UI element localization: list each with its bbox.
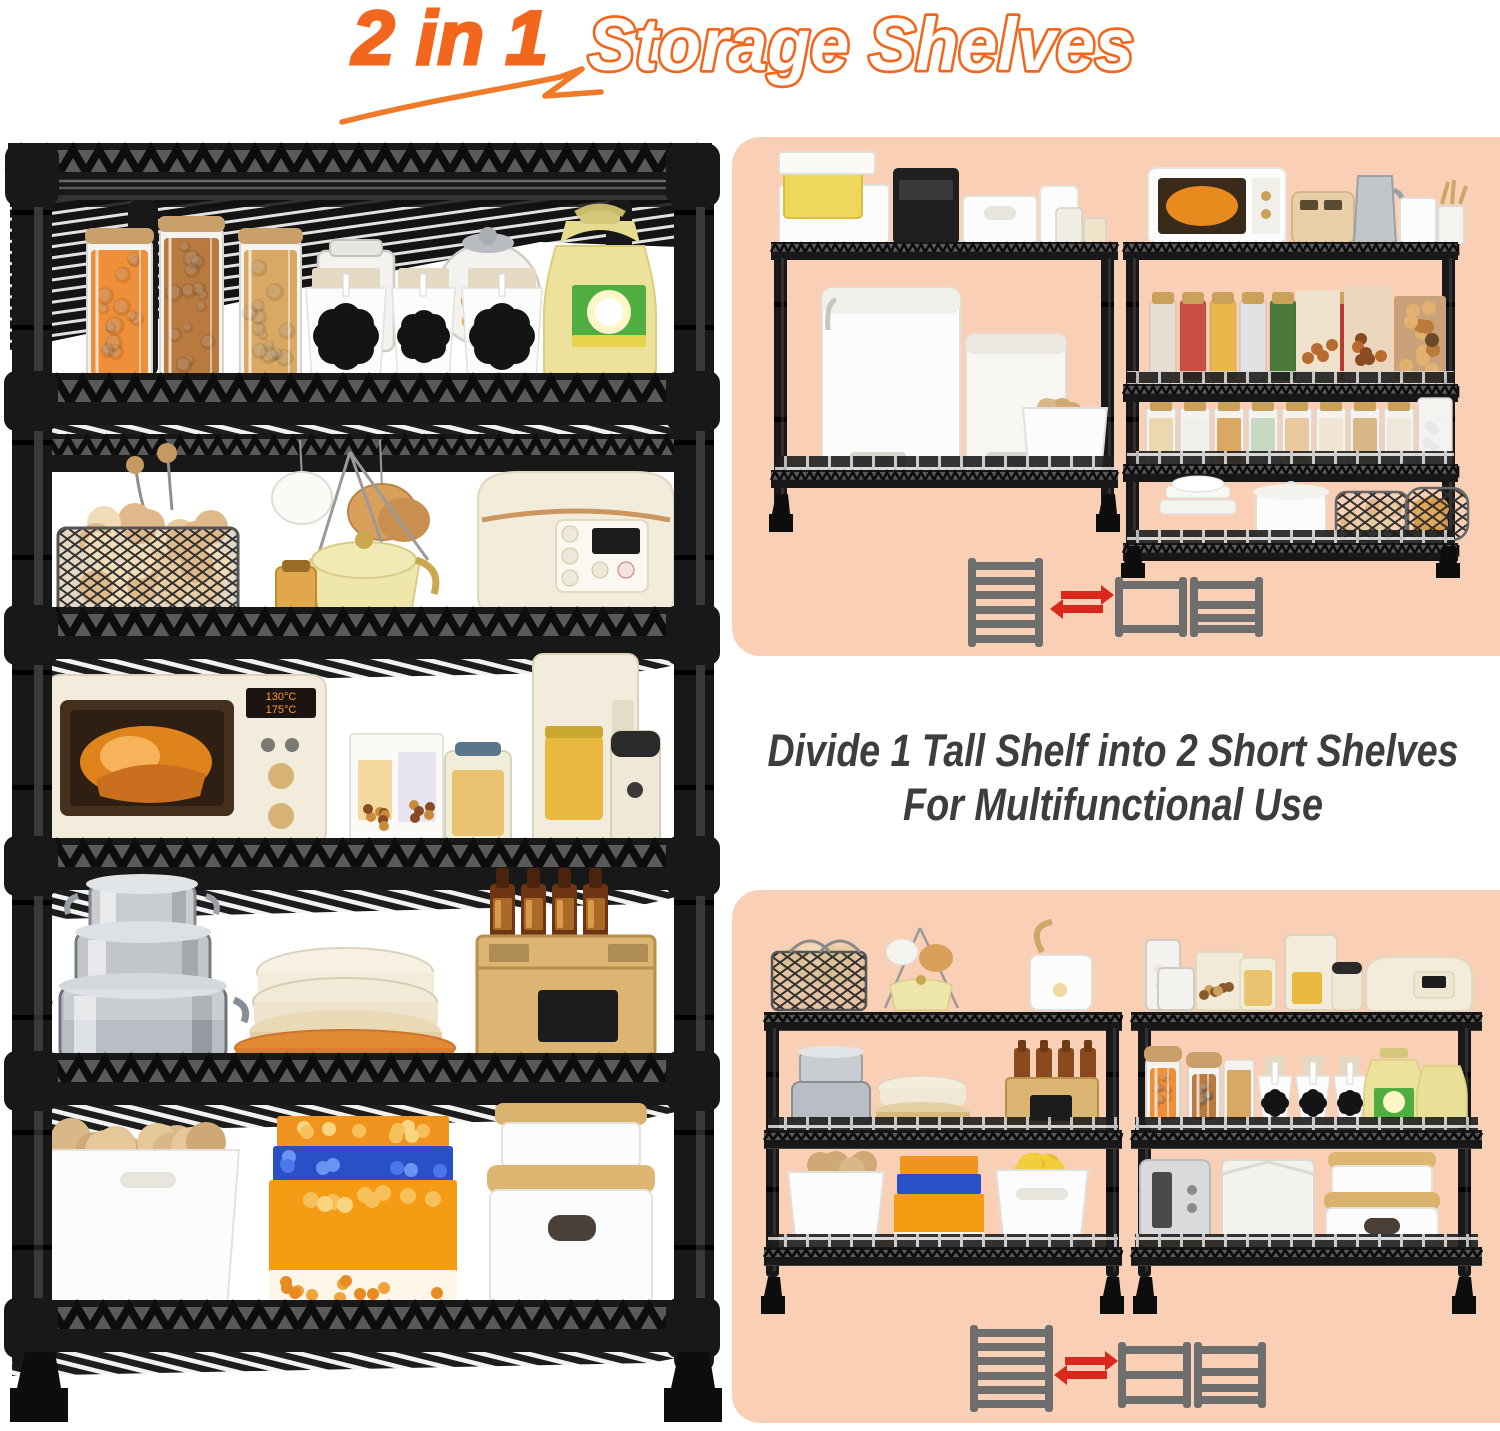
svg-text:Divide 1 Tall Shelf into 2 Sho: Divide 1 Tall Shelf into 2 Short Shelves [768,725,1459,776]
svg-text:Storage Shelves: Storage Shelves [588,3,1134,86]
svg-text:130°C: 130°C [266,691,297,703]
svg-text:For Multifunctional Use: For Multifunctional Use [903,779,1323,830]
svg-text:2 in 1: 2 in 1 [350,0,548,81]
svg-text:175°C: 175°C [266,704,297,716]
